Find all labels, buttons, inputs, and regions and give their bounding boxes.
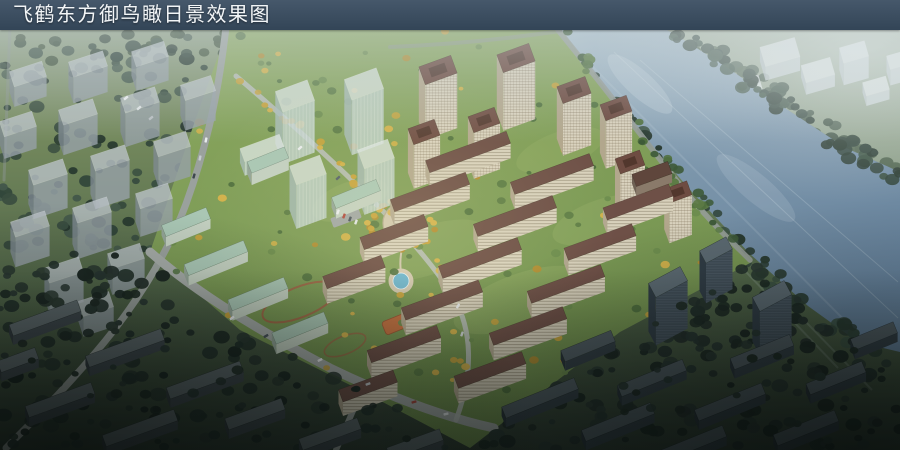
title-bar: 飞鹤东方御鸟瞰日景效果图 (0, 0, 900, 30)
rendering-title: 飞鹤东方御鸟瞰日景效果图 (0, 0, 271, 30)
aerial-rendering (0, 0, 900, 450)
atmosphere-overlays (0, 0, 900, 450)
aerial-rendering-viewport: 飞鹤东方御鸟瞰日景效果图 (0, 0, 900, 450)
